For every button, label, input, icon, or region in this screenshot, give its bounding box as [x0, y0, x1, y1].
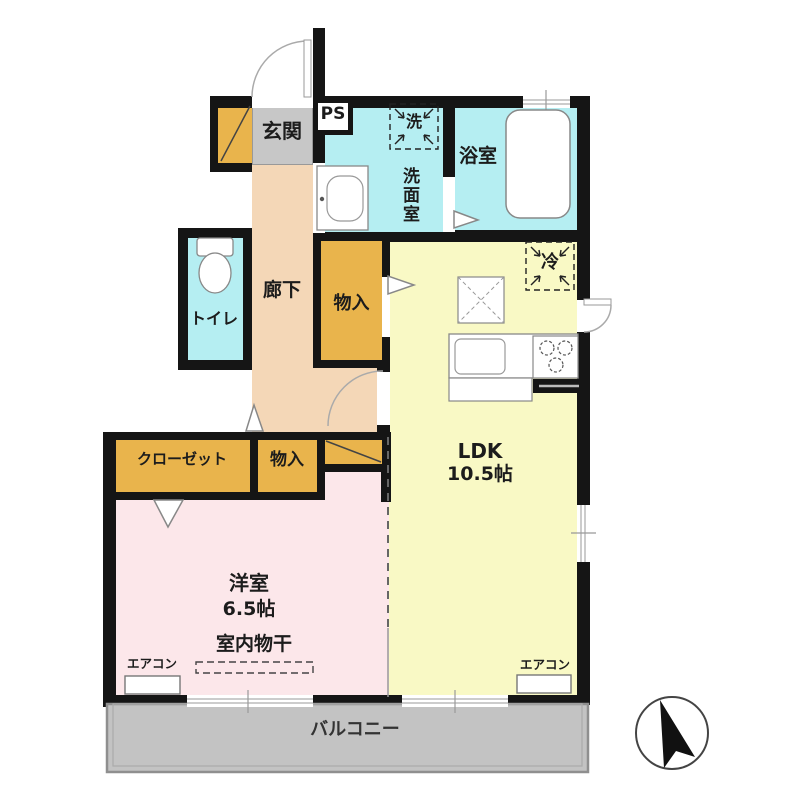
corner-storage-cell: [317, 432, 390, 472]
label-bathroom: 浴室: [443, 146, 513, 168]
floorplan: 玄関 PS 洗 洗面室 浴室 トイレ 廊下 物入 冷 LDK 10.5帖 クロー…: [0, 0, 800, 800]
label-drying: 室内物干: [195, 634, 313, 656]
wall: [443, 230, 587, 242]
entrance-opening: [252, 96, 313, 108]
washroom-door-opening: [313, 163, 325, 233]
bathroom-door-opening: [443, 177, 455, 232]
room-hallway-floor2: [313, 368, 383, 432]
kitchen-wall-stub: [533, 379, 587, 393]
label-closet: クローゼット: [114, 451, 250, 468]
label-bedroom-storage: 物入: [256, 451, 318, 471]
room-toilet-floor: [183, 233, 248, 365]
label-hall-storage: 物入: [321, 294, 382, 315]
wall: [508, 695, 587, 707]
label-ps: PS: [313, 105, 353, 125]
label-washer: 洗: [390, 113, 438, 131]
label-hallway: 廊下: [250, 280, 314, 302]
genkan-shoe-cabinet: [218, 103, 252, 165]
label-fridge: 冷: [526, 253, 574, 274]
wall: [313, 28, 325, 108]
wall: [210, 163, 252, 172]
label-aircon-left: エアコン: [121, 657, 183, 671]
wall: [178, 228, 252, 238]
wall: [577, 562, 590, 705]
room-bathroom-floor: [443, 100, 587, 242]
north-arrow-icon: [636, 697, 708, 769]
hall-storage-opening: [382, 277, 390, 337]
label-washroom: 洗面室: [394, 150, 418, 240]
wall: [210, 96, 218, 170]
wall: [178, 360, 252, 370]
label-balcony: バルコニー: [290, 720, 420, 741]
label-aircon-right: エアコン: [514, 658, 576, 672]
entrance-door-arc: [252, 40, 311, 97]
label-ldk: LDK: [420, 440, 540, 463]
ldk-door-opening: [377, 372, 390, 425]
wall: [178, 228, 188, 370]
label-bedroom: 洋室: [169, 572, 329, 595]
label-toilet: トイレ: [183, 310, 245, 328]
wall: [577, 332, 590, 505]
wall: [577, 96, 590, 300]
label-genkan: 玄関: [250, 120, 314, 143]
label-bedroom-size: 6.5帖: [169, 599, 329, 621]
toilet-door-area: [188, 370, 250, 432]
wall: [313, 695, 402, 707]
label-ldk-size: 10.5帖: [420, 464, 540, 486]
